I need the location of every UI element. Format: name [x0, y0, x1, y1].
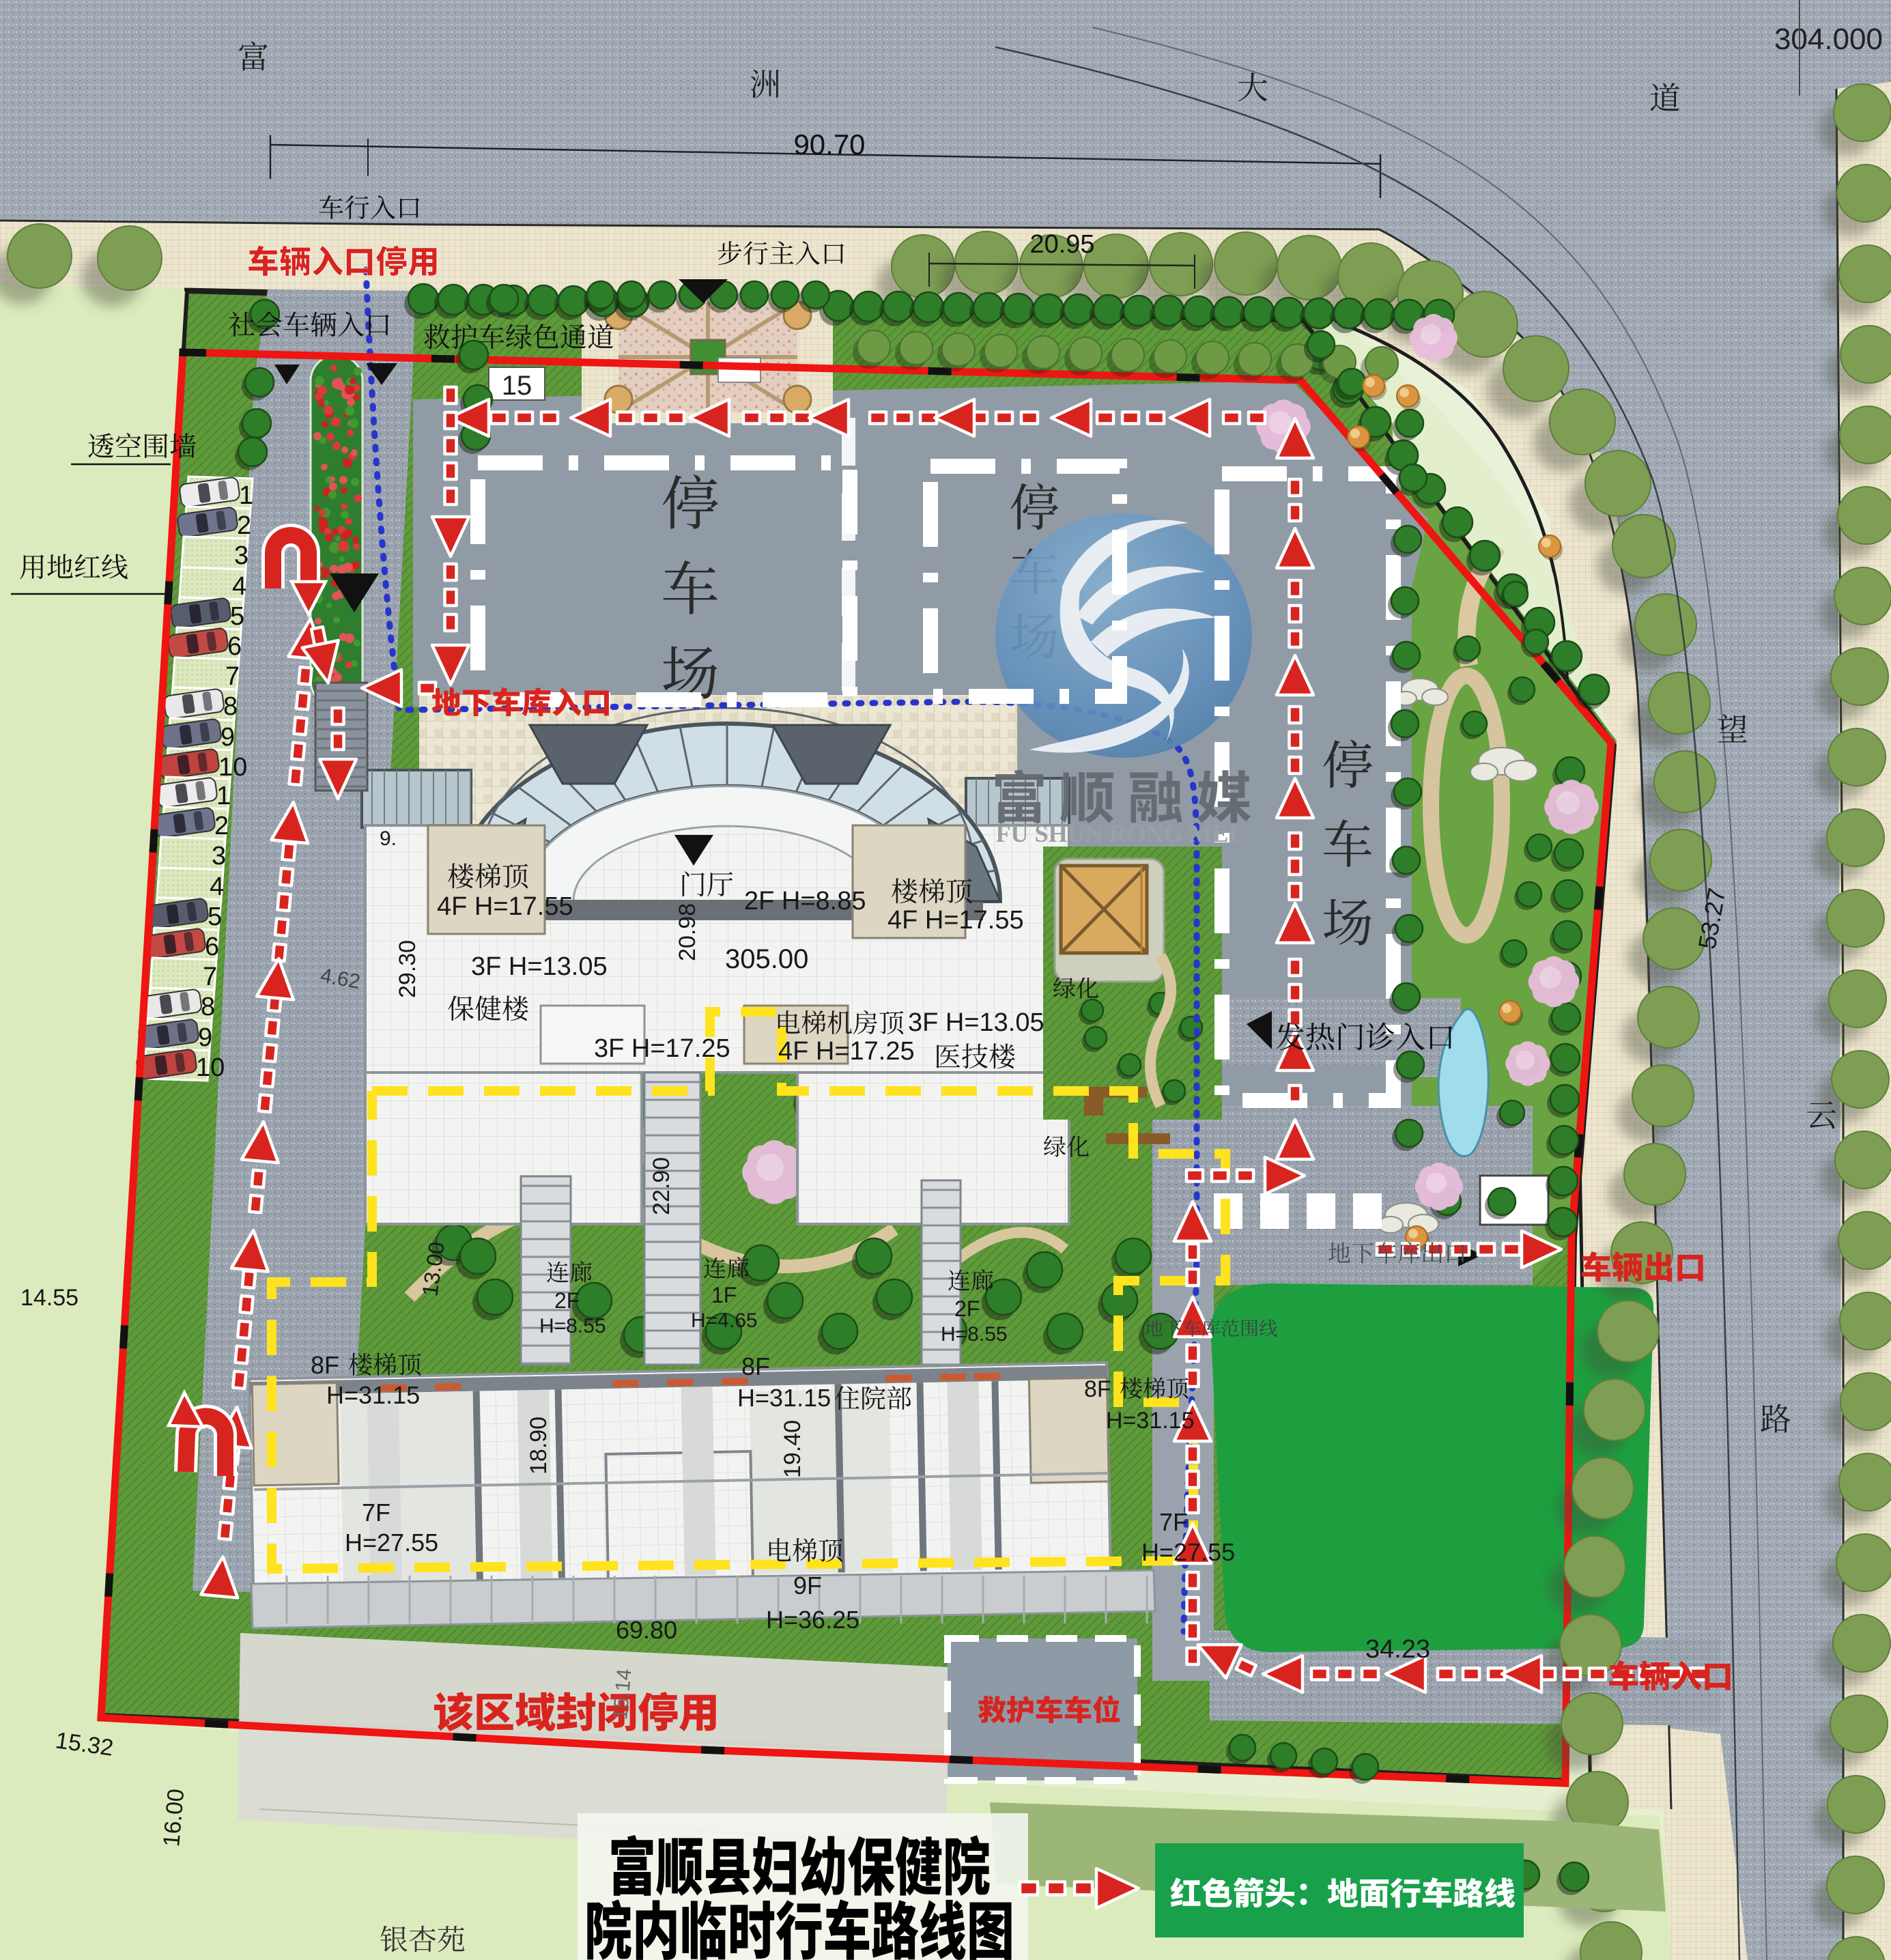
svg-text:3: 3 — [234, 541, 248, 570]
svg-text:4F H=17.55: 4F H=17.55 — [887, 906, 1024, 935]
svg-text:14.55: 14.55 — [20, 1285, 79, 1311]
svg-text:H=36.25: H=36.25 — [766, 1606, 859, 1634]
svg-text:20.98: 20.98 — [674, 903, 700, 961]
svg-text:7F: 7F — [362, 1499, 390, 1526]
svg-text:H=4.65: H=4.65 — [691, 1309, 758, 1332]
svg-text:8: 8 — [201, 993, 215, 1021]
svg-text:10: 10 — [196, 1053, 225, 1082]
svg-text:6: 6 — [205, 933, 219, 961]
svg-text:16.00: 16.00 — [158, 1788, 189, 1848]
svg-text:5: 5 — [230, 602, 244, 631]
svg-text:19.40: 19.40 — [780, 1420, 806, 1478]
svg-text:304.000: 304.000 — [1774, 23, 1883, 56]
svg-text:2F: 2F — [954, 1296, 980, 1321]
svg-text:4: 4 — [210, 872, 224, 901]
svg-text:6: 6 — [227, 632, 242, 661]
svg-text:3F H=13.05: 3F H=13.05 — [471, 952, 608, 981]
svg-text:9F: 9F — [793, 1572, 822, 1600]
svg-text:1F: 1F — [711, 1283, 737, 1307]
svg-text:69.80: 69.80 — [616, 1616, 677, 1644]
svg-text:4F H=17.55: 4F H=17.55 — [437, 892, 573, 921]
svg-text:H=27.55: H=27.55 — [1141, 1538, 1235, 1566]
svg-text:FU SHUN RONG MEI: FU SHUN RONG MEI — [995, 820, 1238, 847]
svg-text:2F: 2F — [554, 1288, 580, 1313]
svg-text:8: 8 — [223, 692, 238, 721]
svg-text:2F H=8.85: 2F H=8.85 — [744, 887, 866, 915]
svg-text:9: 9 — [198, 1023, 212, 1052]
svg-text:H=8.55: H=8.55 — [941, 1323, 1008, 1346]
svg-text:H=27.55: H=27.55 — [345, 1529, 438, 1557]
svg-text:H=31.15: H=31.15 — [737, 1384, 831, 1412]
svg-text:3F H=17.25: 3F H=17.25 — [594, 1034, 730, 1063]
svg-text:18.90: 18.90 — [526, 1417, 552, 1475]
svg-text:29.30: 29.30 — [395, 940, 421, 998]
svg-text:22.90: 22.90 — [649, 1157, 674, 1215]
svg-text:15: 15 — [502, 371, 532, 401]
svg-text:9: 9 — [221, 723, 235, 752]
svg-text:5: 5 — [208, 903, 222, 931]
svg-text:7F: 7F — [1159, 1508, 1188, 1536]
svg-text:4F H=17.25: 4F H=17.25 — [778, 1037, 915, 1066]
svg-text:1: 1 — [216, 782, 231, 810]
svg-text:7: 7 — [203, 963, 217, 991]
svg-text:7: 7 — [225, 662, 240, 691]
svg-text:90.70: 90.70 — [793, 128, 865, 160]
svg-text:3F H=13.05: 3F H=13.05 — [908, 1008, 1044, 1037]
svg-text:1: 1 — [239, 481, 253, 510]
svg-text:8F: 8F — [311, 1351, 339, 1379]
svg-text:8F: 8F — [1084, 1376, 1111, 1402]
svg-text:15.14: 15.14 — [609, 1668, 636, 1721]
svg-text:H=8.55: H=8.55 — [539, 1315, 606, 1337]
svg-text:2: 2 — [237, 511, 251, 540]
svg-text:3: 3 — [212, 842, 226, 870]
svg-text:2: 2 — [214, 812, 229, 840]
svg-text:34.23: 34.23 — [1365, 1635, 1430, 1664]
svg-text:305.00: 305.00 — [725, 944, 808, 974]
svg-text:H=31.15: H=31.15 — [1106, 1408, 1195, 1434]
svg-text:20.95: 20.95 — [1029, 230, 1094, 259]
svg-text:10: 10 — [218, 753, 247, 782]
svg-text:H=31.15: H=31.15 — [326, 1381, 420, 1409]
svg-text:4: 4 — [232, 572, 246, 601]
svg-text:9.: 9. — [380, 827, 397, 850]
svg-text:8F: 8F — [741, 1352, 770, 1380]
